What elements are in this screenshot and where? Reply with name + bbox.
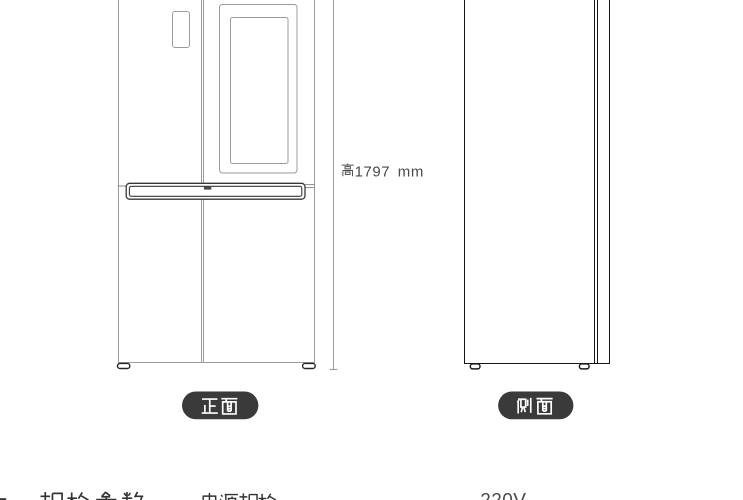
svg-text:mm: mm bbox=[398, 163, 424, 180]
svg-text:1797: 1797 bbox=[355, 163, 391, 180]
svg-text:220V: 220V bbox=[480, 491, 526, 500]
